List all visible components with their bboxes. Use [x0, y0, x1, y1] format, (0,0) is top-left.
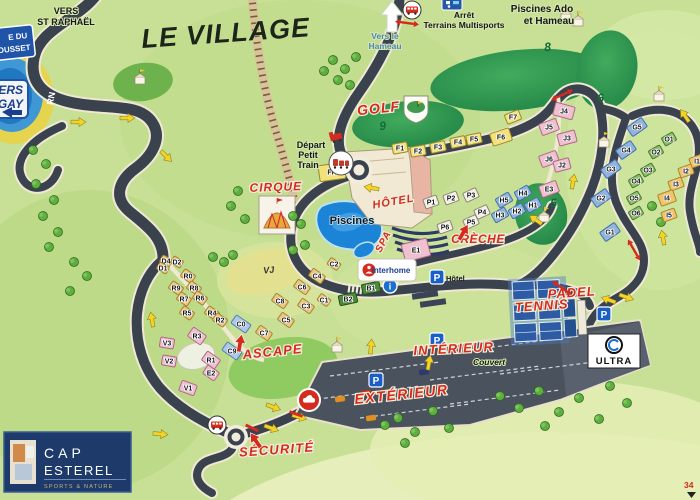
svg-text:ERS: ERS [0, 83, 23, 97]
svg-text:C9: C9 [228, 349, 237, 356]
ultra-label: ULTRA [596, 356, 632, 367]
vj-label: VJ [263, 264, 276, 275]
svg-text:R2: R2 [216, 318, 225, 325]
svg-text:R7: R7 [180, 297, 189, 304]
tree-icon [320, 67, 329, 76]
multisports-icon [442, 0, 462, 10]
svg-text:R0: R0 [184, 274, 193, 281]
svg-text:P: P [434, 273, 441, 284]
tree-icon [575, 394, 584, 403]
svg-text:G1: G1 [605, 230, 614, 237]
bus-stop-icon-south [208, 416, 226, 434]
svg-text:J2: J2 [558, 163, 566, 170]
svg-text:C5: C5 [282, 318, 291, 325]
tree-icon [606, 382, 615, 391]
svg-text:C0: C0 [237, 322, 246, 329]
svg-text:H2: H2 [513, 209, 522, 216]
tree-icon [66, 287, 75, 296]
svg-text:E3: E3 [545, 187, 554, 194]
tree-icon [429, 407, 438, 416]
svg-text:F2: F2 [414, 149, 422, 156]
building-V3: V3 [159, 337, 175, 349]
tree-icon [346, 81, 355, 90]
tree-icon [42, 160, 51, 169]
depart-petit-train-label: Départ [297, 140, 326, 150]
tree-icon [341, 65, 350, 74]
tree-icon [401, 439, 410, 448]
svg-text:Train: Train [297, 160, 319, 170]
tree-icon [535, 387, 544, 396]
tree-icon [515, 404, 524, 413]
tree-icon [289, 212, 298, 221]
svg-text:H4: H4 [519, 191, 528, 198]
svg-text:R3: R3 [193, 334, 202, 341]
svg-text:B1: B1 [367, 286, 376, 293]
svg-text:G5: G5 [632, 125, 641, 132]
tree-icon [541, 422, 550, 431]
building-F1: F1 [392, 142, 409, 155]
parking-icon: P [597, 307, 611, 321]
bus-stop-icon-north [403, 1, 421, 19]
svg-text:B2: B2 [344, 297, 353, 304]
tree-icon [45, 243, 54, 252]
padel-building [577, 300, 587, 334]
ultra-logo: ULTRA [588, 334, 640, 368]
tree-icon [445, 424, 454, 433]
tree-icon [496, 392, 505, 401]
svg-text:R6: R6 [196, 296, 205, 303]
svg-text:H1: H1 [529, 203, 538, 210]
tree-icon [648, 202, 657, 211]
svg-text:D1: D1 [159, 266, 168, 273]
sign-vers-st-raphael: VERS [54, 6, 79, 16]
tree-icon [209, 253, 218, 262]
svg-text:P4: P4 [478, 210, 487, 217]
svg-text:V3: V3 [163, 341, 172, 348]
svg-text:I5: I5 [666, 213, 672, 220]
arret-multisports-label: Arrêt [454, 10, 474, 20]
svg-text:P1: P1 [427, 200, 436, 207]
svg-text:J6: J6 [545, 157, 553, 164]
svg-text:C7: C7 [260, 331, 269, 338]
village-map-screenshot: F1F2F3F4F5F6F7FHJ4J5J3J6J2E3E1G5G4G3G2G1… [0, 0, 700, 500]
svg-text:C6: C6 [298, 285, 307, 292]
svg-text:O4: O4 [631, 179, 640, 186]
piscines-ado-label: Piscines Ado [511, 4, 573, 15]
tree-icon [29, 146, 38, 155]
svg-text:F1: F1 [396, 146, 404, 153]
logo-tagline: SPORTS & NATURE [44, 484, 113, 490]
tree-icon [301, 241, 310, 250]
building-V2: V2 [161, 355, 177, 367]
svg-text:V2: V2 [165, 359, 174, 366]
svg-text:Terrains Multisports: Terrains Multisports [423, 20, 504, 30]
svg-text:P3: P3 [467, 193, 476, 200]
building-F2: F2 [410, 145, 427, 158]
golf-club-logo [404, 96, 428, 123]
svg-text:C3: C3 [302, 304, 311, 311]
tree-icon [381, 421, 390, 430]
svg-text:I3: I3 [673, 182, 679, 189]
tree-icon [32, 180, 41, 189]
svg-text:P: P [373, 376, 380, 387]
parking-icon-hôtel: P [430, 270, 444, 284]
svg-text:R1: R1 [207, 358, 216, 365]
tree-icon [83, 272, 92, 281]
tree-icon [411, 428, 420, 437]
svg-text:D2: D2 [173, 260, 182, 267]
svg-text:E1: E1 [412, 248, 421, 255]
tree-icon [229, 251, 238, 260]
tree-icon [39, 212, 48, 221]
svg-text:O2: O2 [651, 150, 660, 157]
no-entry-car-sign [298, 389, 320, 411]
svg-text:P: P [601, 310, 608, 321]
svg-text:H3: H3 [496, 213, 505, 220]
svg-text:I4: I4 [664, 196, 670, 203]
svg-text:R5: R5 [183, 311, 192, 318]
svg-text:Hameau: Hameau [368, 41, 401, 51]
tree-icon [54, 228, 63, 237]
svg-text:I1: I1 [694, 159, 700, 166]
tree-icon [70, 258, 79, 267]
svg-text:F6: F6 [497, 135, 505, 142]
svg-text:G2: G2 [596, 196, 605, 203]
svg-text:F3: F3 [434, 145, 442, 152]
svg-text:C1: C1 [320, 298, 329, 305]
svg-text:J5: J5 [545, 125, 553, 132]
svg-text:J3: J3 [563, 136, 571, 143]
svg-text:O5: O5 [629, 196, 638, 203]
svg-text:C2: C2 [330, 262, 339, 269]
train-icon [329, 151, 353, 175]
logo-line2: ESTEREL [44, 463, 114, 478]
interhome-label: interhome [372, 266, 411, 275]
cap-esterel-logo: CAP ESTEREL SPORTS & NATURE [4, 432, 131, 492]
svg-text:H5: H5 [500, 198, 509, 205]
resort-map: F1F2F3F4F5F6F7FHJ4J5J3J6J2E3E1G5G4G3G2G1… [0, 0, 700, 500]
tree-icon [297, 220, 306, 229]
tree-icon [227, 202, 236, 211]
svg-text:i: i [389, 282, 392, 292]
svg-text:O1: O1 [664, 137, 673, 144]
tree-icon [220, 258, 229, 267]
svg-text:ST RAPHAËL: ST RAPHAËL [37, 17, 95, 27]
tree-icon [50, 196, 59, 205]
svg-text:et Hameau: et Hameau [524, 16, 575, 27]
parking-icon: P [369, 373, 383, 387]
piscines-label: Piscines [330, 215, 375, 227]
vers-le-hameau-label: Vers le [371, 31, 399, 41]
svg-text:F5: F5 [470, 137, 478, 144]
logo-line1: CAP [44, 445, 85, 461]
svg-text:O6: O6 [631, 211, 640, 218]
svg-text:J4: J4 [560, 109, 568, 116]
zone-label-cirque: CIRQUE [249, 179, 302, 195]
svg-text:O3: O3 [643, 168, 652, 175]
tree-icon [289, 246, 298, 255]
tree-icon [234, 187, 243, 196]
svg-text:F7: F7 [509, 115, 517, 122]
svg-text:R9: R9 [172, 286, 181, 293]
hotel-parking-label: Hôtel [446, 274, 465, 283]
svg-text:V1: V1 [184, 386, 193, 393]
svg-text:Petit: Petit [298, 150, 318, 160]
tree-icon [623, 399, 632, 408]
road-sign-vers-agay: ERS GAY [0, 80, 28, 118]
tree-icon [352, 53, 361, 62]
tree-icon [334, 76, 343, 85]
tree-icon [595, 415, 604, 424]
svg-text:P2: P2 [447, 196, 456, 203]
corner-number: 34 [684, 480, 694, 490]
tree-icon [555, 408, 564, 417]
svg-text:E2: E2 [207, 371, 216, 378]
svg-text:I2: I2 [683, 169, 689, 176]
tree-icon [329, 56, 338, 65]
svg-text:C4: C4 [313, 274, 322, 281]
svg-text:G4: G4 [621, 148, 630, 155]
svg-text:G3: G3 [606, 167, 615, 174]
interhome-logo: interhome [358, 259, 416, 281]
svg-text:P6: P6 [441, 225, 450, 232]
tree-icon [394, 414, 403, 423]
couvert-label: Couvert [473, 357, 506, 367]
tree-icon [241, 215, 250, 224]
svg-text:C8: C8 [276, 299, 285, 306]
svg-text:F4: F4 [454, 140, 462, 147]
